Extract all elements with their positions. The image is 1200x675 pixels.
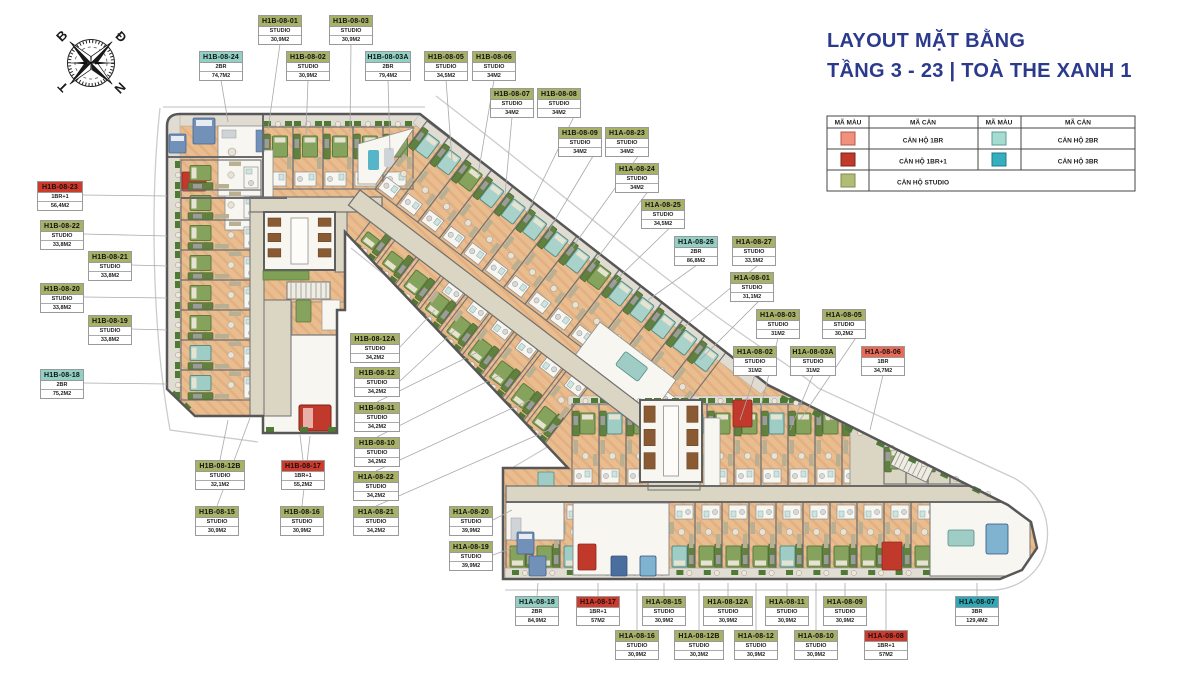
svg-text:MÃ MÀU: MÃ MÀU (986, 118, 1013, 127)
svg-text:CĂN HỘ STUDIO: CĂN HỘ STUDIO (897, 178, 949, 187)
svg-text:CĂN HỘ 1BR: CĂN HỘ 1BR (903, 136, 944, 145)
svg-text:CĂN HỘ 3BR: CĂN HỘ 3BR (1058, 157, 1099, 166)
svg-text:CĂN HỘ 1BR+1: CĂN HỘ 1BR+1 (899, 157, 947, 166)
svg-text:MÃ CĂN: MÃ CĂN (1065, 118, 1091, 127)
svg-text:CĂN HỘ 2BR: CĂN HỘ 2BR (1058, 136, 1099, 145)
svg-text:MÃ MÀU: MÃ MÀU (835, 118, 862, 127)
svg-text:MÃ CĂN: MÃ CĂN (910, 118, 936, 127)
